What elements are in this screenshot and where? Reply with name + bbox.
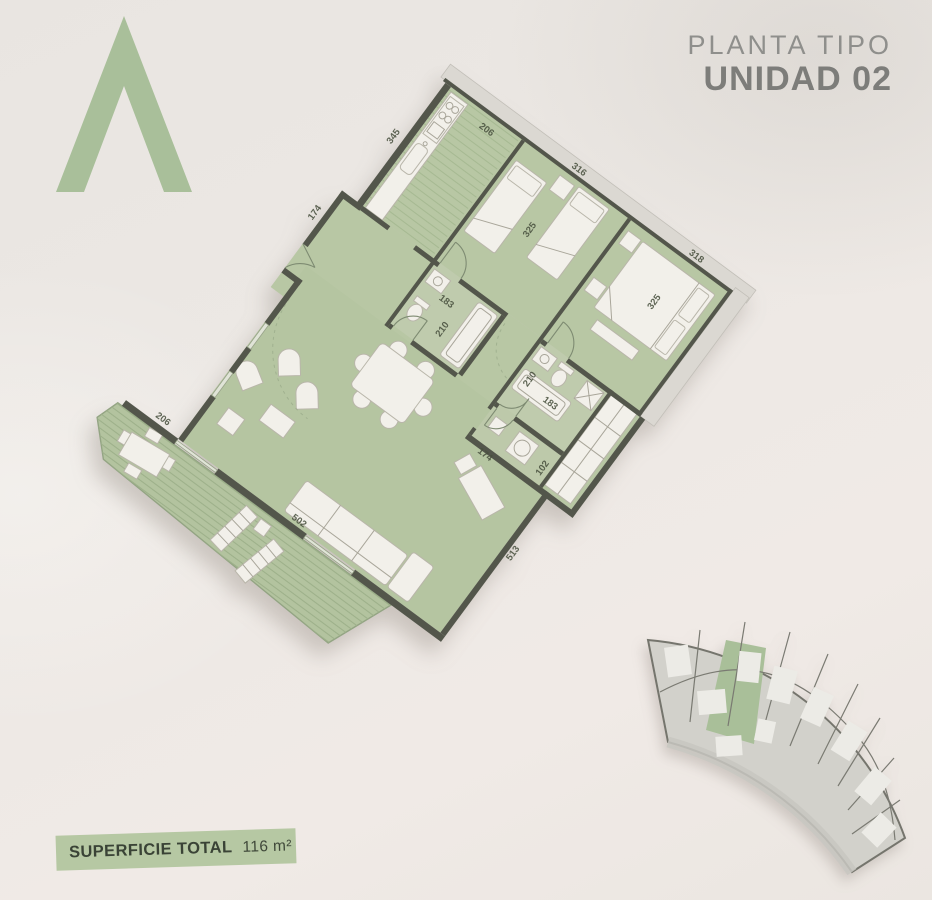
surface-total-value: 116 m² [242, 837, 292, 857]
surface-total-label: SUPERFICIE TOTAL [69, 838, 233, 862]
page: { "header": { "title_line1": "PLANTA TIP… [0, 0, 932, 900]
key-plan [0, 0, 932, 900]
